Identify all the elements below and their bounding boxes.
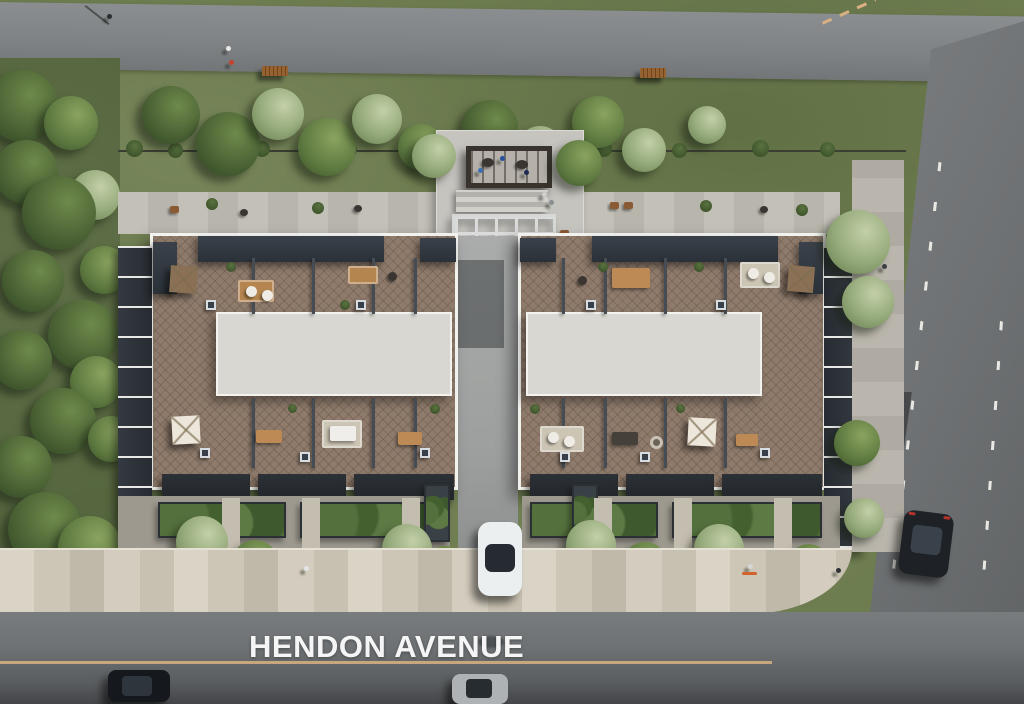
pedestrian [836, 568, 841, 573]
terrace-divider [664, 398, 667, 468]
car-dark-suv [108, 670, 170, 702]
patio-chair [170, 206, 179, 213]
tree [622, 128, 666, 172]
patio-umbrella [169, 265, 198, 294]
shrub [168, 143, 183, 158]
fire-pit [650, 436, 663, 449]
shrub [700, 200, 712, 212]
site-fence [118, 150, 436, 152]
terrace-plant [288, 404, 297, 413]
skylight [560, 452, 570, 462]
lounge-chair [548, 432, 559, 443]
tree [834, 420, 880, 466]
shrub [206, 198, 218, 210]
pergola-table [482, 158, 494, 167]
patio-chair [240, 209, 248, 216]
rear-patio [118, 192, 436, 234]
terrace-divider [312, 258, 315, 314]
car-silver [452, 674, 508, 704]
car-roof-glass [485, 544, 515, 572]
pedestrian [478, 168, 483, 173]
skylight [206, 300, 216, 310]
tree [412, 134, 456, 178]
dining-set [256, 430, 282, 443]
skylight [716, 300, 726, 310]
tree [2, 250, 64, 312]
terrace-plant [430, 404, 440, 414]
pedestrian [107, 14, 112, 19]
terrace-divider [372, 398, 375, 468]
shrub [126, 140, 143, 157]
roof-dark-west [198, 236, 384, 262]
pergola-table [516, 160, 528, 169]
terrace-plant [530, 404, 540, 414]
roof-slab-east [526, 312, 762, 396]
patio-chair [624, 202, 633, 209]
pedestrian [226, 46, 231, 51]
terrace-divider [604, 398, 607, 468]
skylight [586, 300, 596, 310]
patio-umbrella [787, 265, 815, 293]
garden-planter [672, 502, 822, 538]
skylight [300, 452, 310, 462]
tree [298, 118, 356, 176]
terrace-plant [676, 404, 685, 413]
terrace-plant [226, 262, 236, 272]
pedestrian [524, 170, 529, 175]
skylight [760, 448, 770, 458]
entry-walk [302, 498, 320, 550]
terrace-plant [598, 262, 608, 272]
terrace-divider [664, 258, 667, 314]
pedestrian [500, 156, 505, 161]
dining-set [736, 434, 758, 446]
patio-chair [760, 206, 768, 213]
lounge-chair [748, 268, 759, 279]
park-bench [262, 66, 288, 76]
skylight [200, 448, 210, 458]
terrace-divider [562, 258, 565, 314]
shrub [312, 202, 324, 214]
shrub [752, 140, 769, 157]
pedestrian [229, 60, 234, 65]
patio-chair [610, 202, 619, 209]
tree [826, 210, 890, 274]
lounge-chair [246, 286, 257, 297]
pedestrian [882, 264, 887, 269]
roof-dark-west [420, 238, 456, 262]
terrace-rug [348, 266, 378, 284]
tree [844, 498, 884, 538]
tree [842, 276, 894, 328]
street-name-label: HENDON AVENUE [249, 629, 524, 665]
amenity-stairs [456, 190, 548, 212]
car-windshield [122, 676, 152, 696]
patio-umbrella [687, 417, 716, 446]
lounge-chair [764, 272, 775, 283]
roof-dark-east [592, 236, 778, 262]
building-shadow [458, 260, 504, 348]
terrace-divider [252, 398, 255, 468]
shrub [820, 142, 835, 157]
terrace-divider [312, 398, 315, 468]
terrace-rug [540, 426, 584, 452]
pedestrian [748, 564, 753, 569]
car-roof-glass [910, 524, 943, 555]
terrace-divider [414, 258, 417, 314]
patio-umbrella [171, 415, 200, 444]
lounger [612, 432, 638, 445]
tree [142, 86, 200, 144]
pedestrian [542, 192, 547, 197]
pergola [466, 146, 552, 188]
roof-slab-west [216, 312, 452, 396]
terrace-plant [694, 262, 704, 272]
tree [44, 96, 98, 150]
sofa [330, 426, 356, 441]
tree [22, 176, 96, 250]
skylight [420, 448, 430, 458]
entry-walk [674, 498, 692, 550]
entry-walk [774, 498, 792, 550]
tree [252, 88, 304, 140]
taillight [943, 516, 950, 520]
skylight [640, 452, 650, 462]
tree [688, 106, 726, 144]
terrace-plant [340, 300, 350, 310]
tree [556, 140, 602, 186]
tree [352, 94, 402, 144]
roof-dark-east [520, 238, 556, 262]
pedestrian [304, 566, 309, 571]
patio-chair [578, 276, 587, 285]
lounge-chair [262, 290, 273, 301]
aerial-site-render: HENDON AVENUE [0, 0, 1024, 704]
terrace-divider [724, 398, 727, 468]
garden-planter [424, 484, 450, 542]
lounge-chair [564, 436, 575, 447]
patio-chair [354, 205, 362, 212]
taillight [908, 512, 915, 516]
car-dark-sideroad [897, 509, 954, 579]
patio-chair [388, 272, 397, 281]
pedestrian [549, 200, 554, 205]
scooter [742, 572, 757, 575]
shrub [672, 143, 687, 158]
skylight [356, 300, 366, 310]
car-white-driveway [478, 522, 522, 596]
sidewalk [0, 548, 852, 614]
tree [196, 112, 260, 176]
car-windshield [466, 679, 492, 698]
lounger [398, 432, 422, 445]
sofa [612, 268, 650, 288]
shrub [796, 204, 808, 216]
park-bench [640, 68, 666, 78]
